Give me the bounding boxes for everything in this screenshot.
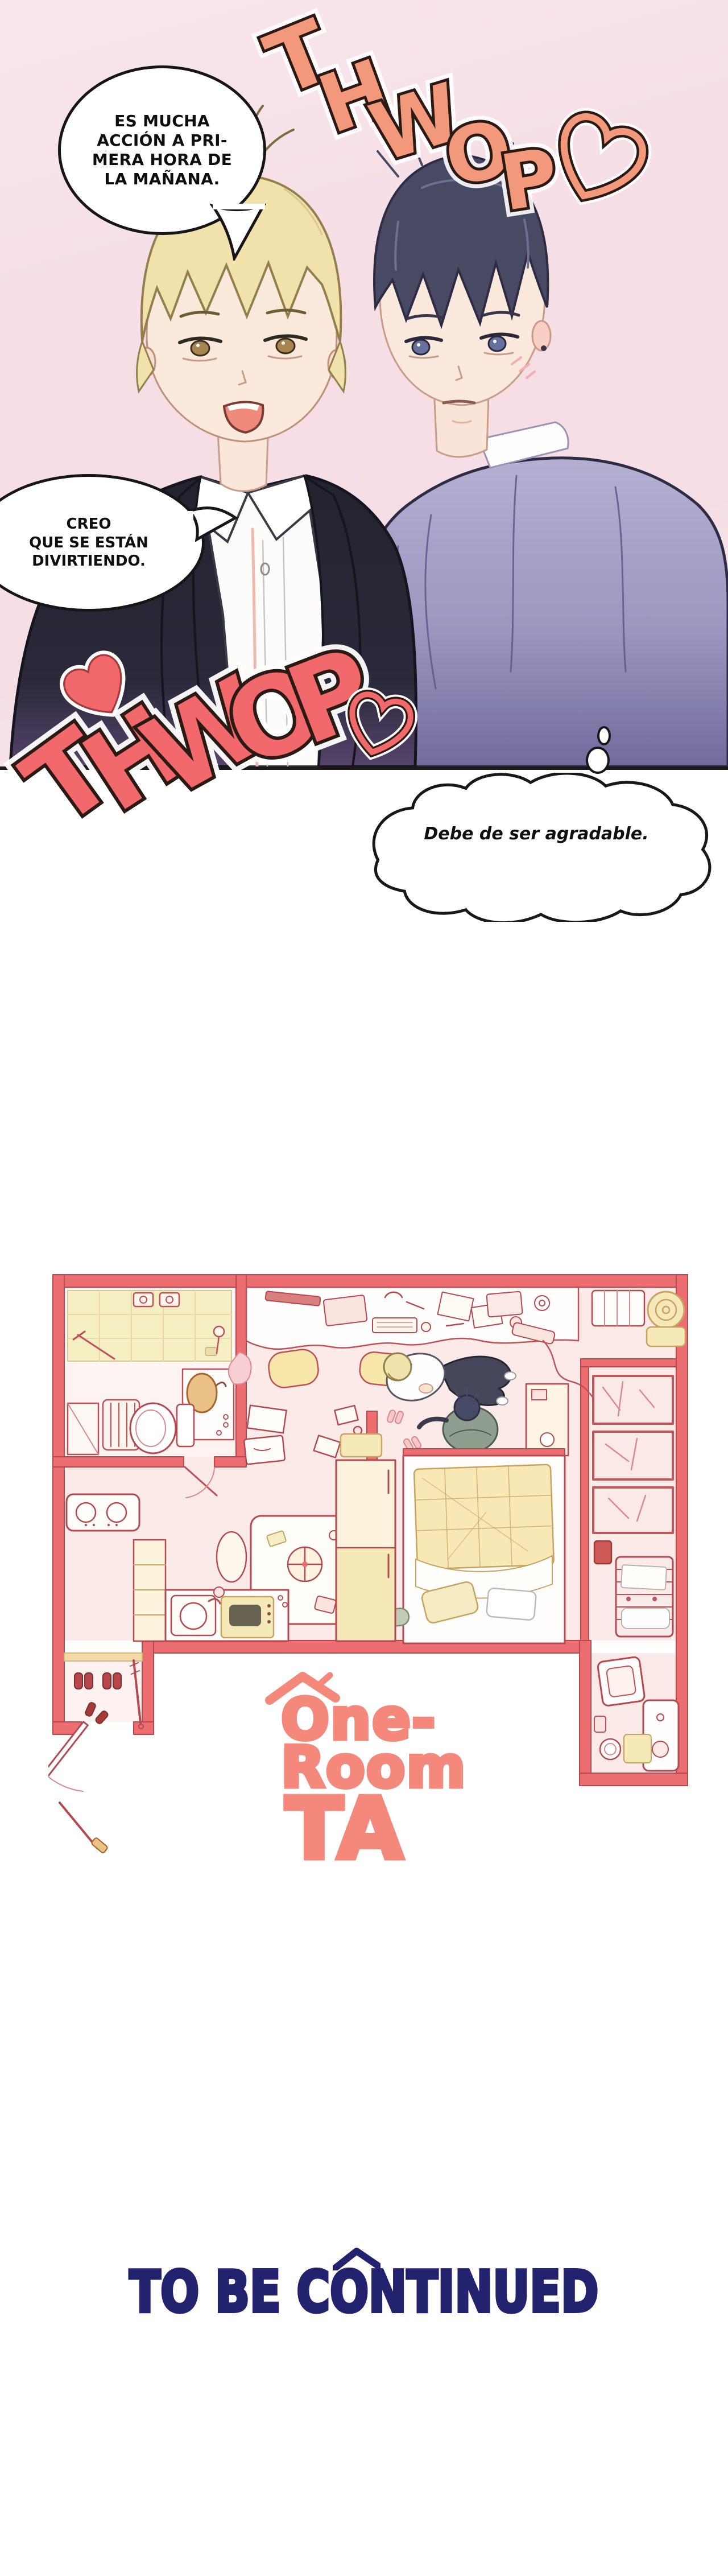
red-bin <box>594 1541 611 1564</box>
chair-left <box>217 1532 246 1582</box>
hanging-towel <box>621 1565 667 1590</box>
kettle <box>214 1587 224 1597</box>
detergent <box>594 1716 606 1732</box>
water-cooler <box>341 1434 382 1457</box>
sfx-thwop-top: T H W O P T H W O P <box>254 2 564 228</box>
sfx-thwop-bottom: T H W O P T H W O P <box>2 624 391 851</box>
mouse <box>421 1322 431 1332</box>
svg-text:P: P <box>495 131 564 229</box>
laptop <box>323 1295 367 1326</box>
fridge <box>336 1460 395 1641</box>
gas-cooktop <box>67 1494 139 1531</box>
keyboard <box>373 1318 417 1333</box>
blanket <box>414 1465 554 1569</box>
rolled-futon <box>648 1292 684 1328</box>
footer-house-roof-icon <box>333 2248 380 2270</box>
lamp <box>540 1433 554 1446</box>
storage-crates <box>593 1376 673 1533</box>
bath-mat <box>624 1734 651 1763</box>
heart-outline-top <box>547 110 649 211</box>
utility-sink <box>592 1291 644 1326</box>
broom <box>60 1803 97 1848</box>
laundry-basket <box>600 1739 621 1759</box>
to-be-continued-text: TO BE CONTINUED <box>73 2264 655 2321</box>
webtoon-page: ES MUCHA ACCIÓN A PRI- MERA HORA DE LA M… <box>0 0 728 2576</box>
shower-head <box>214 1326 224 1337</box>
logo-line-ta: TA <box>286 1787 404 1871</box>
sfx-layer: T H W O P T H W O P <box>0 0 728 945</box>
kitchen-sink <box>180 1603 206 1629</box>
pillow-white <box>486 1588 536 1620</box>
hanging-shirt <box>622 1608 669 1629</box>
